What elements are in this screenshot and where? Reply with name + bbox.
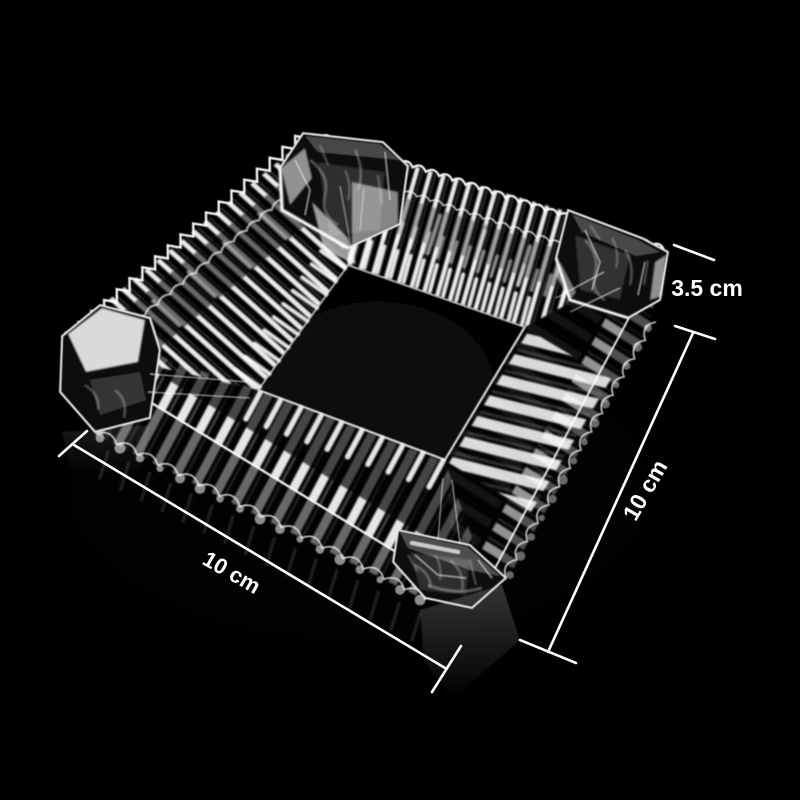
svg-text:3.5 cm: 3.5 cm [671,275,743,301]
